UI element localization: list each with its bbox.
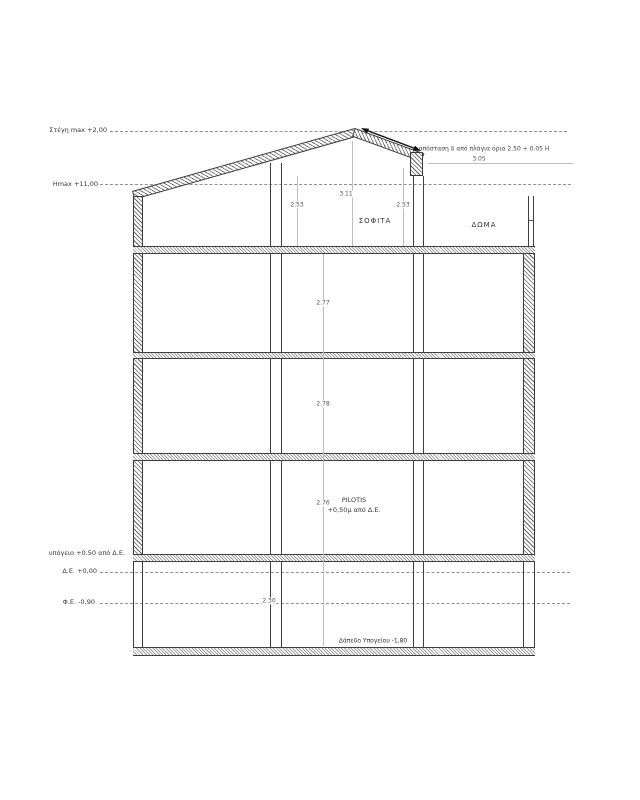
dimension-line-floors xyxy=(323,254,324,646)
dimension-line-side-setback xyxy=(428,163,573,164)
dim-floor-3: 2.77 xyxy=(315,300,330,307)
terrace-railing xyxy=(528,196,534,247)
level-line-street xyxy=(100,603,570,604)
wall-left-basement xyxy=(133,556,143,648)
level-line-datum xyxy=(100,572,570,573)
slab-ground-floor xyxy=(133,554,535,562)
roof-slope-left xyxy=(132,128,358,200)
room-label-attic: ΣΟΦΙΤΑ xyxy=(359,217,392,225)
slab-basement-floor xyxy=(133,647,535,656)
room-label-roof-terrace: ΔΩΜΑ xyxy=(472,221,497,229)
dim-attic-right: 2.53 xyxy=(395,202,410,209)
level-label-roof-max: Στέγη max +2,00 xyxy=(17,127,107,134)
section-drawing-sheet: Στέγη max +2,00 Hmax +11,00 υπόγειο +0.5… xyxy=(0,0,640,800)
wall-right xyxy=(523,247,535,556)
room-label-pilotis: PILOTIS +0,50μ από Δ.Ε. xyxy=(327,495,380,515)
side-setback-annotation: απόσταση δ από πλάγια όρια 2.50 + 0.05 H xyxy=(419,146,550,153)
pilotis-title: PILOTIS xyxy=(327,495,380,505)
dim-attic-ridge: 3.11 xyxy=(338,191,353,198)
dim-side-setback-value: 3.05 xyxy=(471,156,486,163)
level-label-datum: Δ.Ε. +0,00 xyxy=(17,568,97,575)
wall-right-basement xyxy=(523,556,535,648)
dimension-line-attic-left xyxy=(297,176,298,246)
slab-attic-floor xyxy=(133,246,535,254)
pilotis-subtitle: +0,50μ από Δ.Ε. xyxy=(327,505,380,515)
basement-floor-label: Δάπεδο Υπογείου -1,80 xyxy=(339,638,408,645)
level-label-basement-ceiling: υπόγειο +0.50 από Δ.Ε. xyxy=(15,550,125,557)
dim-attic-left: 2.53 xyxy=(289,202,304,209)
dim-basement: 2.30 xyxy=(261,598,276,605)
railing-rung xyxy=(529,220,533,221)
column-interior-left xyxy=(270,163,282,648)
slab-first-floor xyxy=(133,453,535,461)
level-label-hmax: Hmax +11,00 xyxy=(18,181,98,188)
dim-floor-2: 2.78 xyxy=(315,401,330,408)
slab-second-floor xyxy=(133,352,535,359)
level-label-street: Φ.Ε. -0,90 xyxy=(15,599,95,606)
roof-slope-arrow xyxy=(352,119,432,159)
